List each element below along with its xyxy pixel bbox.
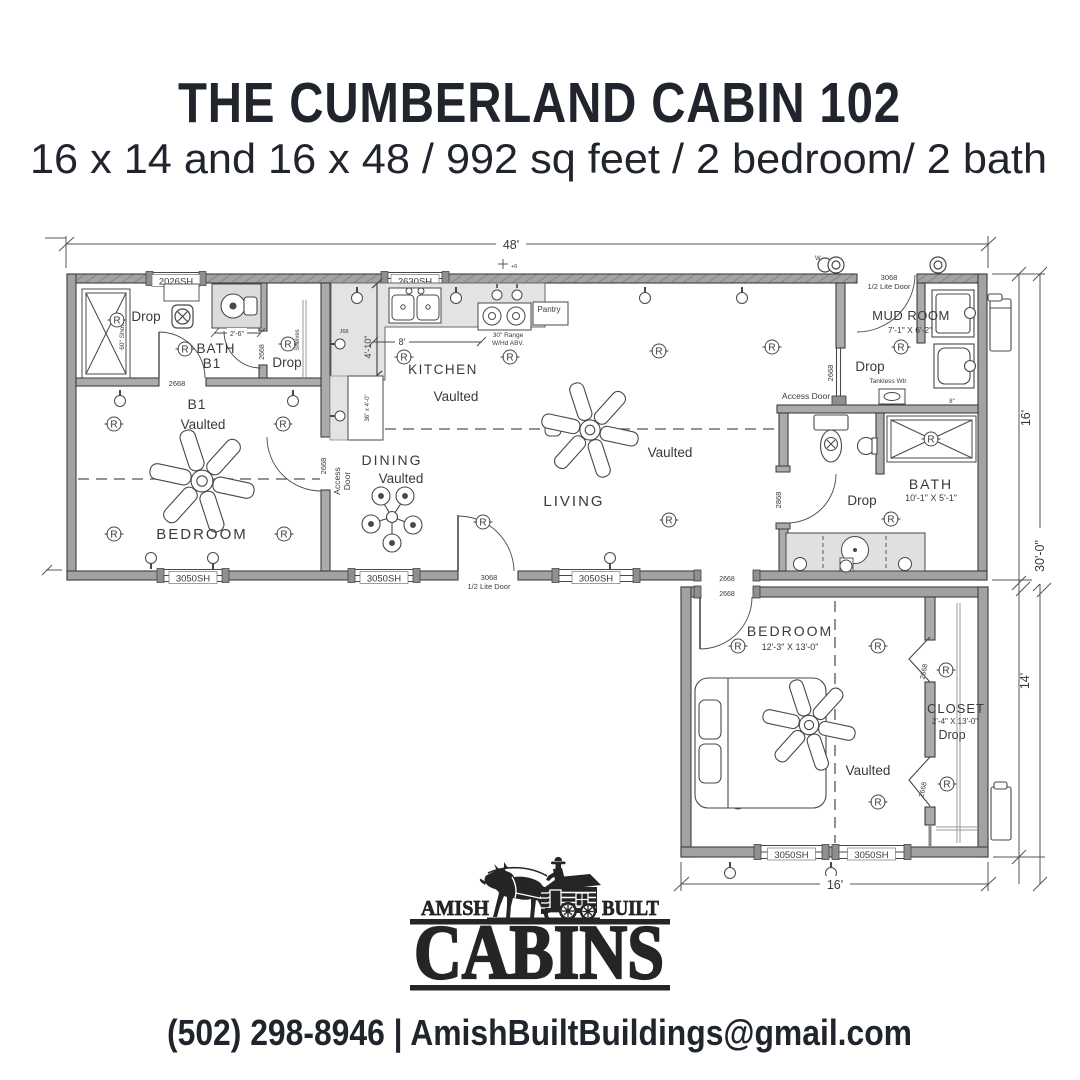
- svg-text:1/2 Lite Door: 1/2 Lite Door: [468, 582, 511, 591]
- svg-text:+6: +6: [511, 264, 517, 270]
- svg-text:R: R: [874, 798, 881, 809]
- svg-text:8": 8": [949, 399, 954, 405]
- svg-text:R: R: [181, 345, 188, 356]
- svg-text:2'-6": 2'-6": [230, 331, 244, 338]
- svg-text:36" x 4'-0": 36" x 4'-0": [365, 394, 371, 421]
- svg-text:KITCHEN: KITCHEN: [408, 362, 478, 377]
- svg-text:2668: 2668: [259, 344, 266, 360]
- svg-text:Drop: Drop: [131, 309, 160, 324]
- svg-text:3050SH: 3050SH: [367, 574, 401, 585]
- svg-text:R: R: [927, 435, 934, 446]
- svg-text:BEDROOM: BEDROOM: [747, 623, 833, 639]
- svg-text:W/Hd ABV.: W/Hd ABV.: [492, 340, 524, 347]
- svg-text:R: R: [279, 420, 286, 431]
- svg-text:7'-1" X 6'-2": 7'-1" X 6'-2": [888, 325, 932, 335]
- svg-text:2868: 2868: [774, 492, 783, 509]
- svg-text:2668: 2668: [319, 458, 328, 475]
- svg-text:W: W: [815, 256, 821, 262]
- svg-text:30" Range: 30" Range: [493, 332, 524, 339]
- svg-text:R: R: [655, 347, 662, 358]
- svg-text:2668: 2668: [719, 576, 735, 583]
- svg-text:16 x 14 and 16 x 48 / 992 sq f: 16 x 14 and 16 x 48 / 992 sq feet / 2 be…: [30, 135, 1047, 182]
- svg-text:R: R: [897, 343, 904, 354]
- svg-text:Drop: Drop: [272, 355, 301, 370]
- svg-text:DINING: DINING: [362, 452, 423, 468]
- svg-text:3050SH: 3050SH: [854, 850, 888, 861]
- svg-text:3068: 3068: [881, 273, 898, 282]
- svg-text:Door: Door: [342, 472, 352, 491]
- svg-text:BEDROOM: BEDROOM: [156, 526, 248, 543]
- svg-text:Vaulted: Vaulted: [181, 417, 226, 432]
- svg-text:R: R: [110, 530, 117, 541]
- svg-text:CLOSET: CLOSET: [927, 701, 985, 716]
- svg-text:1/2 Lite Door: 1/2 Lite Door: [868, 282, 911, 291]
- svg-text:2668: 2668: [826, 365, 835, 382]
- svg-text:12'-3" X 13'-0": 12'-3" X 13'-0": [762, 642, 819, 652]
- svg-text:Pantry: Pantry: [537, 305, 560, 314]
- svg-text:Access: Access: [332, 467, 342, 494]
- svg-text:3068: 3068: [481, 573, 498, 582]
- svg-text:Tankless Wtr: Tankless Wtr: [869, 378, 907, 385]
- svg-text:3050SH: 3050SH: [774, 850, 808, 861]
- svg-text:R: R: [734, 642, 741, 653]
- svg-text:Shelves: Shelves: [295, 329, 301, 350]
- svg-text:R: R: [768, 343, 775, 354]
- svg-text:THE CUMBERLAND CABIN 102: THE CUMBERLAND CABIN 102: [178, 71, 901, 135]
- svg-text:R: R: [665, 516, 672, 527]
- svg-text:2668: 2668: [719, 591, 735, 598]
- svg-text:B1: B1: [187, 396, 206, 412]
- svg-text:(502) 298-8946 | AmishBuiltBui: (502) 298-8946 | AmishBuiltBuildings@gma…: [167, 1012, 912, 1054]
- svg-text:R: R: [943, 780, 950, 791]
- svg-text:R: R: [280, 530, 287, 541]
- svg-text:2668: 2668: [169, 379, 186, 388]
- svg-text:B1: B1: [203, 356, 222, 371]
- svg-text:CABINS: CABINS: [414, 909, 664, 995]
- svg-text:R: R: [479, 518, 486, 529]
- svg-text:16': 16': [827, 878, 843, 892]
- svg-text:Vaulted: Vaulted: [434, 389, 479, 404]
- svg-text:Vaulted: Vaulted: [379, 471, 424, 486]
- svg-text:J68: J68: [340, 329, 349, 335]
- svg-text:R: R: [113, 316, 120, 327]
- svg-text:R: R: [506, 353, 513, 364]
- svg-text:3050SH: 3050SH: [579, 574, 613, 585]
- svg-text:BATH: BATH: [909, 476, 953, 492]
- svg-text:BATH: BATH: [196, 341, 235, 356]
- svg-text:R: R: [284, 340, 291, 351]
- svg-text:16': 16': [1019, 410, 1033, 426]
- svg-text:4'-10": 4'-10": [363, 336, 373, 359]
- svg-text:R: R: [942, 666, 949, 677]
- svg-text:48': 48': [503, 238, 519, 252]
- svg-text:R: R: [874, 642, 881, 653]
- svg-text:Drop: Drop: [855, 359, 884, 374]
- svg-text:R: R: [887, 515, 894, 526]
- svg-text:3050SH: 3050SH: [176, 574, 210, 585]
- svg-text:R: R: [400, 353, 407, 364]
- svg-text:LIVING: LIVING: [543, 493, 604, 510]
- svg-text:Access Door: Access Door: [782, 391, 830, 401]
- svg-text:Vaulted: Vaulted: [648, 445, 693, 460]
- svg-text:10'-1" X 5'-1": 10'-1" X 5'-1": [905, 493, 957, 503]
- svg-text:30'-0": 30'-0": [1033, 540, 1047, 572]
- svg-text:Drop: Drop: [938, 728, 965, 742]
- svg-text:Vaulted: Vaulted: [846, 763, 891, 778]
- svg-text:14': 14': [1018, 673, 1032, 689]
- svg-text:2'-4" X 13'-0": 2'-4" X 13'-0": [932, 717, 978, 726]
- svg-text:Drop: Drop: [847, 493, 876, 508]
- svg-text:R: R: [110, 420, 117, 431]
- svg-text:MUD ROOM: MUD ROOM: [872, 308, 950, 323]
- svg-text:8': 8': [399, 337, 406, 347]
